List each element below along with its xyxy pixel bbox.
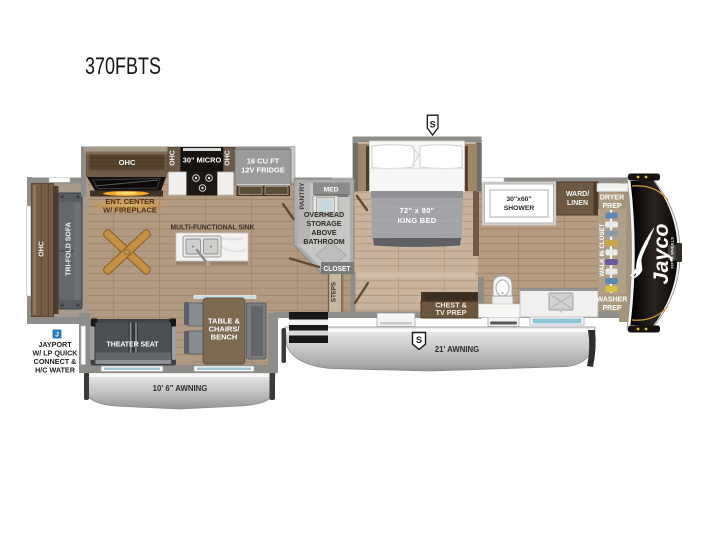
svg-text:WARD/: WARD/ [566, 191, 589, 198]
svg-text:Jayco: Jayco [649, 224, 673, 285]
svg-text:MED: MED [323, 187, 338, 194]
svg-text:WASHER: WASHER [597, 297, 628, 304]
svg-text:LINEN: LINEN [567, 200, 588, 207]
svg-text:PANTRY: PANTRY [299, 182, 306, 210]
svg-text:DRYER: DRYER [600, 195, 624, 202]
svg-text:OHC: OHC [170, 150, 177, 166]
svg-text:CLOSET: CLOSET [324, 264, 351, 273]
svg-text:OHC: OHC [39, 241, 46, 257]
svg-text:16 CU FT: 16 CU FT [247, 157, 280, 166]
svg-text:10' 6" AWNING: 10' 6" AWNING [153, 384, 208, 393]
svg-text:BENCH: BENCH [211, 333, 238, 342]
svg-text:STORAGE: STORAGE [307, 220, 342, 228]
svg-text:S: S [416, 335, 422, 345]
svg-text:S: S [430, 120, 436, 130]
svg-text:370FBTS: 370FBTS [85, 53, 161, 80]
svg-text:W/ FIREPLACE: W/ FIREPLACE [103, 206, 157, 215]
svg-text:30"x60": 30"x60" [506, 196, 531, 203]
svg-text:OHC: OHC [225, 150, 232, 166]
svg-text:OHC: OHC [119, 158, 136, 167]
svg-text:TRI-FOLD SOFA: TRI-FOLD SOFA [66, 222, 73, 276]
svg-text:72" x 80": 72" x 80" [400, 206, 435, 215]
svg-text:12V FRIDGE: 12V FRIDGE [241, 166, 285, 175]
svg-text:TV PREP: TV PREP [436, 308, 467, 317]
svg-text:MULTI-FUNCTIONAL SINK: MULTI-FUNCTIONAL SINK [171, 223, 255, 232]
svg-text:WALK IN CLOSET: WALK IN CLOSET [599, 223, 606, 276]
svg-text:THEATER SEAT: THEATER SEAT [107, 342, 160, 349]
svg-text:KING BED: KING BED [397, 216, 436, 225]
svg-text:H/C WATER: H/C WATER [35, 366, 76, 375]
svg-text:J: J [55, 332, 59, 339]
svg-text:BATHROOM: BATHROOM [303, 238, 344, 246]
svg-text:21' AWNING: 21' AWNING [435, 345, 479, 354]
svg-text:STEPS: STEPS [331, 282, 338, 302]
svg-text:OVERHEAD: OVERHEAD [304, 211, 344, 219]
svg-text:PREP: PREP [602, 305, 621, 312]
svg-text:ABOVE: ABOVE [311, 229, 336, 237]
svg-text:FIFTH WHEELS: FIFTH WHEELS [671, 237, 675, 269]
svg-text:PREP: PREP [602, 203, 621, 210]
svg-text:SHOWER: SHOWER [504, 205, 535, 212]
svg-text:30" MICRO: 30" MICRO [183, 156, 222, 165]
